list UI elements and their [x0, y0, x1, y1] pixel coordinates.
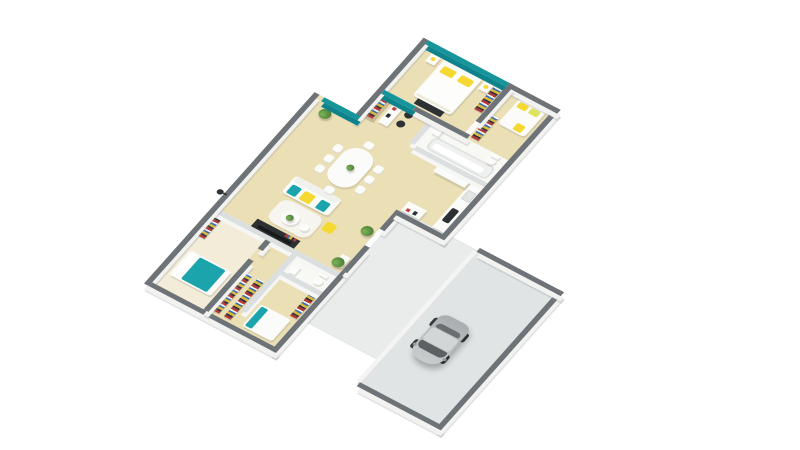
floor-plan-render [0, 0, 800, 450]
isometric-plan [141, 16, 691, 450]
